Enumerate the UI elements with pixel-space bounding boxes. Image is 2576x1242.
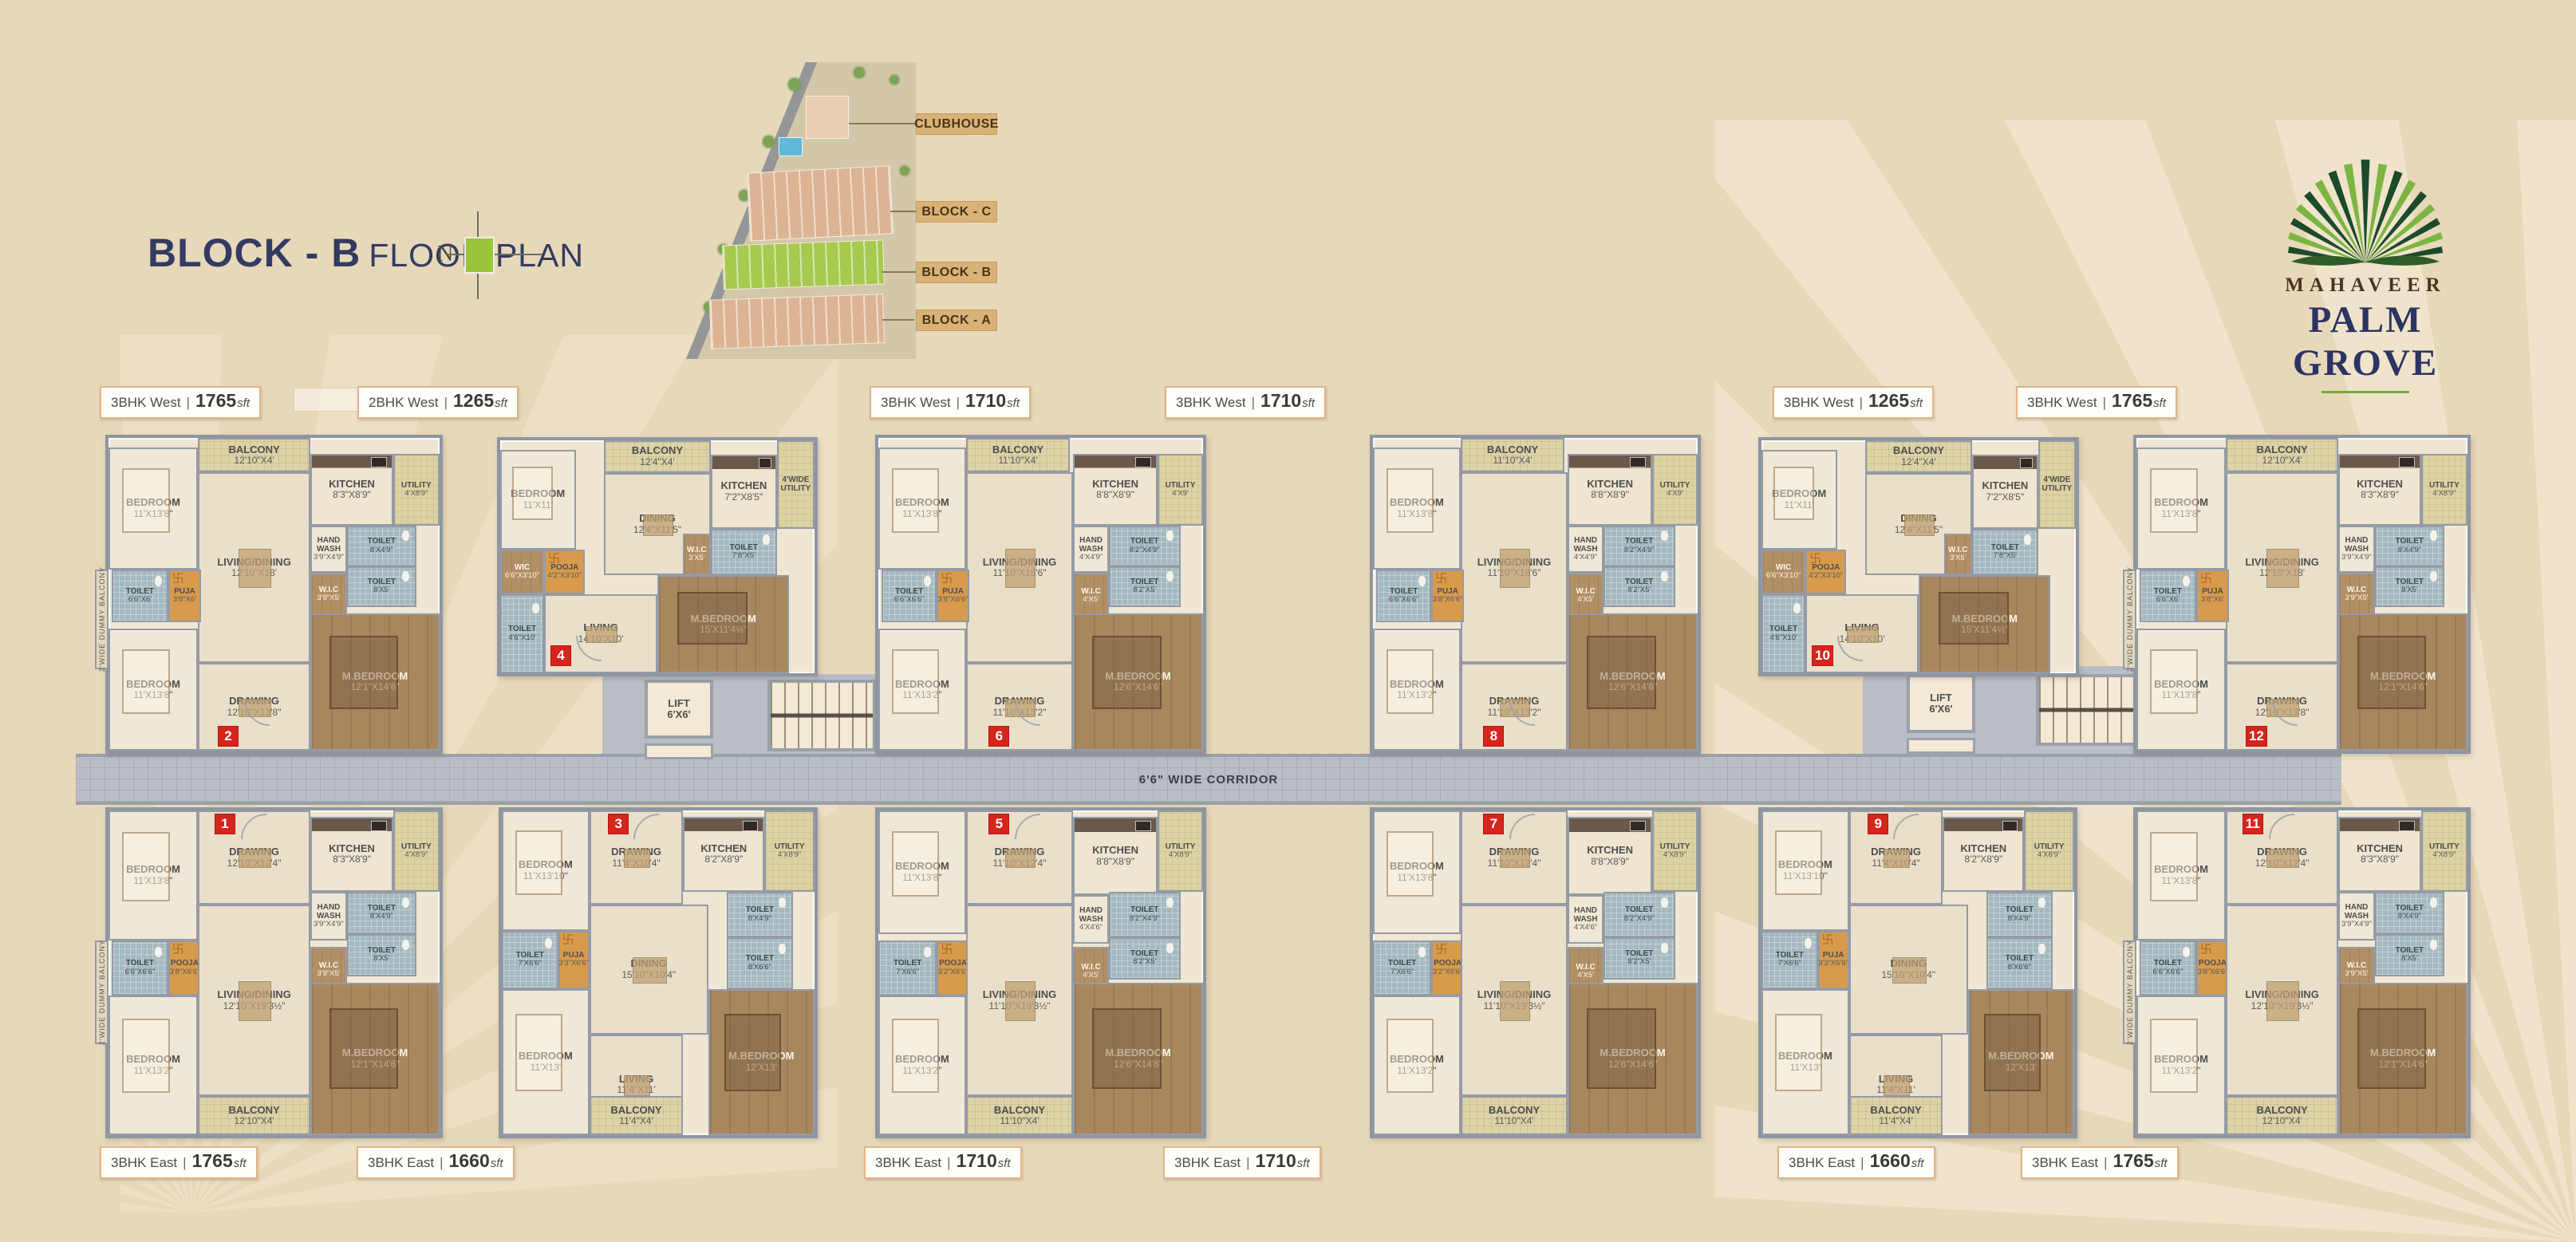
room-dimension: 8'X5' xyxy=(373,955,390,964)
room-dimension: 11'X13'2" xyxy=(902,1066,941,1076)
room-kitchen: KITCHEN8'8"X8'9" xyxy=(1073,817,1158,895)
brand-name: MAHAVEER xyxy=(2242,274,2489,297)
corridor: 6'6" WIDE CORRIDOR xyxy=(76,754,2341,805)
room-dimension: 4'X8'9" xyxy=(2432,851,2456,860)
room-name: LIVING/DINING xyxy=(217,557,290,569)
room-dimension: 4'X9' xyxy=(1172,490,1189,499)
room-m-bedroom: M.BEDROOM12'1"X14'6" xyxy=(310,983,440,1135)
room-name: LIVING/DINING xyxy=(2245,989,2318,1001)
room-bedroom: BEDROOM11'X13'2" xyxy=(2136,996,2226,1135)
room-toilet: TOILET8'X5' xyxy=(347,566,416,607)
room-dimension: 8'3"X8'9" xyxy=(333,854,371,865)
leader-line-block-a xyxy=(882,319,914,321)
room-dimension: 11'X13'10" xyxy=(1783,871,1828,881)
room-dimension: 4'X8'9" xyxy=(1663,851,1686,860)
logo-underline xyxy=(2322,391,2409,393)
room-dimension: 8'2"X5' xyxy=(1627,586,1651,595)
room-bedroom: BEDROOM11'X13'8" xyxy=(108,448,198,570)
lift-right: LIFT 6'X6' xyxy=(1907,674,1975,733)
room-dimension: 12'1"X14'6" xyxy=(2378,1059,2427,1070)
dummy-balcony-strip: 2'WIDE DUMMY BALCONY xyxy=(2123,940,2136,1044)
room-toilet: TOILET7'8"X5' xyxy=(711,529,777,575)
tree-icon xyxy=(854,67,865,78)
room-bedroom: BEDROOM11'X11' xyxy=(500,450,576,550)
room-name: M.BEDROOM xyxy=(728,1051,794,1063)
room-dimension: 8'X4'9" xyxy=(2008,915,2031,924)
room-name: DRAWING xyxy=(611,846,661,858)
room-dimension: 6'6"X3'10" xyxy=(1766,572,1801,581)
room-dimension: 15'10"X10'4" xyxy=(1881,970,1935,980)
room-dimension: 8'X6'6" xyxy=(748,964,771,972)
dummy-balcony-label: 2'WIDE DUMMY BALCONY xyxy=(2126,940,2134,1045)
room-dimension: 11'X13'2" xyxy=(133,1066,172,1076)
map-label-block-a: BLOCK - A xyxy=(916,310,997,331)
room-dimension: 6'6"X6'6" xyxy=(1389,596,1419,605)
unit-type: 3BHK East xyxy=(875,1155,941,1171)
north-indicator: N xyxy=(431,211,574,307)
leader-line-block-c xyxy=(890,211,916,212)
room-name: 4'WIDE UTILITY xyxy=(2040,475,2074,493)
room-living-dining: LIVING/DINING11'10"X18'6" xyxy=(1461,472,1568,663)
room-dimension: 11'X13'8" xyxy=(133,509,172,519)
room-dimension: 11'X13'8" xyxy=(2161,509,2200,519)
room-toilet: TOILET6'6"X6'6" xyxy=(882,570,937,623)
room-name: LIVING/DINING xyxy=(1477,557,1551,569)
room-utility: UTILITY4'X8'9" xyxy=(393,810,440,892)
room-dining: DINING15'10"X10'4" xyxy=(1849,905,1968,1035)
room-name: DINING xyxy=(639,513,676,525)
room-name: POOJA xyxy=(939,959,967,968)
unit-11: BEDROOM11'X13'8"DRAWING12'10"X12'4"KITCH… xyxy=(2133,807,2471,1138)
room-name: M.BEDROOM xyxy=(1105,1047,1170,1059)
room-bedroom: BEDROOM11'X13'2" xyxy=(878,996,966,1135)
staircase-left xyxy=(767,680,876,751)
room-dimension: 11'X11' xyxy=(523,500,554,511)
unit-area-label-8: 3BHK West|1710sft xyxy=(1165,386,1326,419)
room-name: M.BEDROOM xyxy=(342,1047,408,1059)
room-bedroom: BEDROOM11'X13'8" xyxy=(2136,629,2226,751)
area-unit: sft xyxy=(1911,1157,1924,1170)
room-dimension: 12'10"X18' xyxy=(2259,568,2305,578)
room-dimension: 7'8"X5' xyxy=(1994,552,2017,561)
room-dimension: 7'X6'6" xyxy=(519,960,542,968)
room-puja: PUJA3'8"X6' xyxy=(168,570,202,623)
room-dimension: 4'X5' xyxy=(1577,972,1594,980)
unit-10: BALCONY12'4"X4'BEDROOM11'X11'DINING12'4"… xyxy=(1758,437,2079,676)
room-m-bedroom: M.BEDROOM12'X13' xyxy=(708,989,815,1135)
room-name: BEDROOM xyxy=(519,1051,573,1063)
unit-area-label-11: 3BHK East|1765sft xyxy=(2021,1146,2179,1179)
room-dimension: 3'9"X5' xyxy=(317,970,340,979)
room-dimension: 4'X4'6" xyxy=(1574,924,1597,932)
unit-type: 3BHK West xyxy=(2027,395,2097,411)
dummy-balcony-strip: 2'WIDE DUMMY BALCONY xyxy=(95,570,108,669)
palm-icon xyxy=(2282,142,2449,270)
room-dimension: 12'10"X18' xyxy=(231,568,277,578)
room-toilet: TOILET8'2"X5' xyxy=(1604,566,1675,607)
room-puja: PUJA3'8"X6'6" xyxy=(1431,570,1464,623)
tree-icon xyxy=(900,166,909,175)
room-name: DRAWING xyxy=(1489,846,1540,858)
room-dimension: 12'1"X14'6" xyxy=(350,682,399,692)
room-dimension: 12'10"X19'3½" xyxy=(223,1001,286,1011)
room-toilet: TOILET8'X4'9" xyxy=(2375,526,2444,566)
room-dimension: 3'X5' xyxy=(688,554,705,563)
room-toilet: TOILET6'6"X6' xyxy=(2140,570,2196,623)
unit-type: 3BHK West xyxy=(111,395,181,411)
room-name: KITCHEN xyxy=(1092,479,1138,491)
room-kitchen: KITCHEN8'3"X8'9" xyxy=(2338,454,2421,526)
room-utility: UTILITY4'X8'9" xyxy=(2421,454,2468,526)
room-balcony: BALCONY12'4"X4' xyxy=(1865,440,1972,473)
room-name: KITCHEN xyxy=(720,480,767,492)
room-dimension: 12'6"X14'6" xyxy=(1114,1059,1162,1070)
room-name: BALCONY xyxy=(994,1105,1045,1117)
room-dimension: 12'6"X14'6" xyxy=(1608,1059,1657,1070)
room-name: LIVING xyxy=(619,1074,653,1086)
room-name: BEDROOM xyxy=(2154,864,2208,876)
room-dimension: 3'9"X5' xyxy=(2345,970,2368,979)
room-dimension: 3'X5' xyxy=(1950,554,1967,563)
room-toilet: TOILET4'6"X10' xyxy=(500,594,544,673)
room-bedroom: BEDROOM11'X13'8" xyxy=(108,629,198,751)
unit-area-label-7: 3BHK East|1710sft xyxy=(1163,1146,1321,1179)
room-name: BALCONY xyxy=(1870,1105,1921,1117)
room-name: HAND WASH xyxy=(1569,906,1602,924)
room-dimension: 7'2"X8'5" xyxy=(724,492,763,503)
unit-number-badge: 4 xyxy=(550,645,571,666)
room-dimension: 11'X13'8" xyxy=(2161,876,2200,886)
area-unit: sft xyxy=(1007,396,1020,410)
room-dimension: 4'X4'9" xyxy=(1574,554,1597,562)
room-dimension: 8'8"X8'9" xyxy=(1591,857,1629,867)
room-name: BALCONY xyxy=(1893,445,1944,457)
room-wic: WIC6'6"X3'10" xyxy=(1761,550,1805,593)
room-dimension: 8'2"X4'9" xyxy=(1130,915,1160,924)
swimming-pool xyxy=(779,137,803,156)
room-pooja: POOJA4'2"X3'10" xyxy=(1805,550,1846,593)
room-dimension: 12'X13' xyxy=(746,1063,777,1073)
room-name: DRAWING xyxy=(2257,846,2307,858)
room-toilet: TOILET6'6"X6' xyxy=(112,570,168,623)
room-w-i-c: W.I.C4'X5' xyxy=(1073,573,1109,620)
room-name: M.BEDROOM xyxy=(1600,1047,1665,1059)
room-bedroom: BEDROOM11'X13'2" xyxy=(1373,629,1461,751)
project-name: PALM GROVE xyxy=(2242,298,2489,384)
room-dimension: 11'X13'8" xyxy=(2161,690,2200,700)
leader-line-block-b xyxy=(882,271,916,273)
unit-area-value: 1710 xyxy=(957,1150,997,1172)
unit-area-value: 1765 xyxy=(2113,1150,2154,1172)
unit-area-label-12: 3BHK West|1765sft xyxy=(2016,386,2177,419)
room-name: BEDROOM xyxy=(2154,497,2208,509)
room-dimension: 6'6"X3'10" xyxy=(505,572,539,581)
room-w-i-c: W.I.C3'X5' xyxy=(1944,534,1972,576)
room-name: DINING xyxy=(1900,513,1937,525)
room-pooja: POOJA3'8"X6'6" xyxy=(2196,940,2230,996)
room-w-i-c: W.I.C4'X5' xyxy=(1568,573,1604,620)
room-dimension: 4'X8'9" xyxy=(404,490,428,499)
room-toilet: TOILET8'X4'9" xyxy=(2375,892,2444,934)
room-name: BEDROOM xyxy=(126,864,180,876)
room-dimension: 3'8"X6'6" xyxy=(1433,596,1463,605)
lift-label: LIFT xyxy=(1930,692,1951,704)
room-dimension: 12'10"X19'3½" xyxy=(2251,1001,2314,1011)
room-dimension: 8'X4'9" xyxy=(2398,546,2421,555)
room-name: LIVING/DINING xyxy=(983,557,1056,569)
room-living-dining: LIVING/DINING12'10"X19'3½" xyxy=(2226,905,2338,1096)
room-dimension: 4'X9' xyxy=(1667,490,1683,499)
room-dimension: 3'9"X4'9" xyxy=(2341,554,2372,562)
room-toilet: TOILET8'2"X5' xyxy=(1109,566,1181,607)
room-dimension: 8'3"X8'9" xyxy=(2361,490,2399,500)
room-name: BEDROOM xyxy=(2154,1054,2208,1066)
room-name: TOILET xyxy=(508,625,536,633)
room-name: LIVING xyxy=(1844,622,1879,634)
lift-shaft-right xyxy=(1907,738,1975,754)
label-separator: | xyxy=(947,1155,950,1171)
room-dimension: 8'8"X8'9" xyxy=(1096,857,1134,867)
room-dimension: 8'2"X4'9" xyxy=(1624,915,1655,924)
room-dimension: 8'X4'9" xyxy=(2398,913,2421,921)
room-hand-wash: HAND WASH3'9"X4'9" xyxy=(2338,526,2375,573)
area-unit: sft xyxy=(234,1157,247,1170)
room-balcony: BALCONY12'10"X4' xyxy=(2226,438,2338,472)
room-dimension: 8'X4'9" xyxy=(370,546,393,555)
map-label-block-b: BLOCK - B xyxy=(916,262,997,283)
room-dimension: 4'6"X10' xyxy=(508,634,535,643)
room-balcony: BALCONY11'4"X4' xyxy=(1849,1096,1943,1135)
room-name: BEDROOM xyxy=(511,488,565,500)
room-dimension: 11'X13'8" xyxy=(133,876,172,886)
room-dimension: 8'X4'9" xyxy=(370,913,393,921)
room-toilet: TOILET8'X5' xyxy=(2375,934,2444,976)
label-separator: | xyxy=(1246,1155,1249,1171)
unit-area-value: 1710 xyxy=(1260,390,1301,412)
room-dimension: 8'2"X4'9" xyxy=(1130,546,1160,555)
room-dimension: 12'4"X11'5" xyxy=(1895,525,1943,535)
unit-3: BEDROOM11'X13'10"DRAWING11'4"X10'4"KITCH… xyxy=(499,807,818,1138)
room-dimension: 12'10"X4' xyxy=(234,1116,274,1126)
room-name: POOJA xyxy=(1434,959,1462,968)
room-kitchen: KITCHEN7'2"X8'5" xyxy=(711,455,777,529)
room-name: LIVING xyxy=(583,622,617,634)
room-name: TOILET xyxy=(1130,905,1158,914)
room-dimension: 4'X8'9" xyxy=(404,851,428,860)
area-unit: sft xyxy=(2155,1157,2168,1170)
room-name: HAND WASH xyxy=(2340,536,2373,554)
room-dimension: 3'9"X4'9" xyxy=(314,921,344,929)
floor-plan-canvas: BLOCK - BFLOOR PLAN N CLUBHOUSE BLOCK - … xyxy=(0,0,2576,1242)
unit-type: 3BHK East xyxy=(368,1155,434,1171)
block-b-building xyxy=(722,239,885,290)
room-dimension: 8'2"X5' xyxy=(1133,586,1156,595)
room-name: BEDROOM xyxy=(895,861,949,873)
staircase-right xyxy=(2036,674,2144,746)
room-name: LIVING/DINING xyxy=(983,989,1056,1001)
room-name: KITCHEN xyxy=(1960,843,2006,855)
room-name: BALCONY xyxy=(2256,444,2307,456)
room-utility: UTILITY4'X8'9" xyxy=(393,454,440,526)
leader-line-clubhouse xyxy=(849,123,917,124)
room-dimension: 8'X5' xyxy=(2401,586,2418,595)
map-label-block-c: BLOCK - C xyxy=(916,201,997,223)
room-balcony: BALCONY12'4"X4' xyxy=(604,440,711,473)
room-dimension: 8'2"X8'9" xyxy=(1964,854,2002,865)
room-dimension: 3'9"X5' xyxy=(2345,594,2368,603)
room-dimension: 6'6"X6'6" xyxy=(894,596,925,605)
room-name: DRAWING xyxy=(229,846,279,858)
room-dimension: 3'9"X4'9" xyxy=(314,554,344,562)
room-pooja: POOJA3'8"X6'6" xyxy=(168,940,202,996)
unit-1: BEDROOM11'X13'8"DRAWING12'10"X12'4"KITCH… xyxy=(105,807,443,1138)
room-name: KITCHEN xyxy=(1587,845,1633,857)
room-m-bedroom: M.BEDROOM15'X11'4½" xyxy=(1919,575,2050,673)
room-balcony: BALCONY11'4"X4' xyxy=(590,1096,684,1135)
room-name: TOILET xyxy=(746,954,774,963)
label-separator: | xyxy=(1860,1155,1864,1171)
unit-type: 2BHK West xyxy=(369,395,439,411)
label-separator: | xyxy=(183,1155,186,1171)
block-c-building xyxy=(747,165,894,241)
room-hand-wash: HAND WASH3'9"X4'9" xyxy=(310,526,347,573)
unit-number-badge: 9 xyxy=(1868,814,1888,834)
room-toilet: TOILET8'2"X4'9" xyxy=(1109,526,1181,566)
unit-area-label-9: 3BHK East|1660sft xyxy=(1777,1146,1935,1179)
room-bedroom: BEDROOM11'X13' xyxy=(502,989,590,1135)
room-name: KITCHEN xyxy=(2357,843,2403,855)
unit-8: BALCONY11'10"X4'BEDROOM11'X13'8"LIVING/D… xyxy=(1370,435,1701,754)
room-kitchen: KITCHEN8'3"X8'9" xyxy=(310,817,393,892)
unit-number-badge: 10 xyxy=(1812,645,1833,666)
room-balcony: BALCONY11'10"X4' xyxy=(1461,1096,1568,1135)
unit-area-label-3: 3BHK East|1660sft xyxy=(357,1146,515,1179)
room-dimension: 8'3"X8'9" xyxy=(333,490,371,500)
room-toilet: TOILET7'X6'6" xyxy=(878,940,937,996)
room-dimension: 12'10"X12'4" xyxy=(2255,858,2310,869)
room-name: BALCONY xyxy=(2256,1105,2307,1117)
room-dimension: 11'10"X4' xyxy=(998,455,1037,466)
room-dimension: 11'X13'2" xyxy=(1397,1066,1436,1076)
room-drawing: DRAWING11'4"X10'4" xyxy=(590,810,684,905)
room-utility: UTILITY4'X8'9" xyxy=(2421,810,2468,892)
room-name: TOILET xyxy=(2154,959,2182,968)
room-name: M.BEDROOM xyxy=(1600,671,1665,683)
room-name: LIVING/DINING xyxy=(2245,557,2318,569)
room-pooja: POOJA3'2"X6'6" xyxy=(937,940,969,996)
room-name: BEDROOM xyxy=(519,859,573,871)
room-kitchen: KITCHEN8'8"X8'9" xyxy=(1073,454,1158,526)
room-name: BALCONY xyxy=(632,445,683,457)
room-hand-wash: HAND WASH4'X4'9" xyxy=(1073,526,1109,573)
unit-area-value: 1265 xyxy=(1868,390,1909,412)
label-separator: | xyxy=(187,395,190,411)
label-separator: | xyxy=(2104,1155,2107,1171)
room-dimension: 12'1"X14'6" xyxy=(350,1059,399,1070)
room-name: M.BEDROOM xyxy=(2370,671,2436,683)
room-bedroom: BEDROOM11'X13'2" xyxy=(878,629,966,751)
unit-number-badge: 11 xyxy=(2243,814,2263,834)
room-bedroom: BEDROOM11'X13'2" xyxy=(108,996,198,1135)
room-dimension: 8'2"X5' xyxy=(1627,958,1651,967)
room-toilet: TOILET7'X6'6" xyxy=(502,931,558,989)
room-toilet: TOILET8'X5' xyxy=(2375,566,2444,607)
room-dimension: 4'X8'9" xyxy=(778,851,801,860)
unit-number-badge: 2 xyxy=(218,726,239,747)
dummy-balcony-label: 2'WIDE DUMMY BALCONY xyxy=(2126,566,2134,672)
north-horizontal-line xyxy=(447,254,542,255)
map-label-clubhouse: CLUBHOUSE xyxy=(916,113,997,135)
room-toilet: TOILET8'X6'6" xyxy=(1986,937,2052,989)
area-unit: sft xyxy=(1302,396,1315,410)
room-dimension: 8'3"X8'9" xyxy=(2361,854,2399,865)
room-dimension: 11'X13' xyxy=(531,1063,561,1073)
room-w-i-c: W.I.C3'9"X5' xyxy=(2338,573,2375,617)
unit-area-label-2: 3BHK West|1765sft xyxy=(100,386,261,419)
room-puja: PUJA3'3"X6'6" xyxy=(1818,931,1849,989)
room-name: M.BEDROOM xyxy=(2370,1047,2436,1059)
unit-2: BALCONY12'10"X4'BEDROOM11'X13'8"LIVING/D… xyxy=(105,435,443,754)
unit-area-label-1: 3BHK East|1765sft xyxy=(100,1146,258,1179)
room-name: BALCONY xyxy=(228,1105,279,1117)
room-dimension: 8'2"X8'9" xyxy=(704,854,743,865)
tree-icon xyxy=(788,78,801,91)
room-dimension: 8'X6'6" xyxy=(2008,964,2031,972)
room-dimension: 4'2"X3'10" xyxy=(1809,572,1843,581)
label-separator: | xyxy=(440,1155,443,1171)
room-dimension: 11'X13'2" xyxy=(2161,1066,2200,1076)
room-name: HAND WASH xyxy=(312,536,345,554)
room-dimension: 11'10"X18'6" xyxy=(993,568,1047,578)
room-toilet: TOILET6'6"X6'6" xyxy=(112,940,168,996)
label-separator: | xyxy=(2103,395,2106,411)
lift-left: LIFT 6'X6' xyxy=(645,680,713,739)
unit-area-value: 1765 xyxy=(195,390,236,412)
room-name: KITCHEN xyxy=(329,479,375,491)
room-bedroom: BEDROOM11'X13'10" xyxy=(502,810,590,931)
room-name: DINING xyxy=(1890,958,1927,970)
room-m-bedroom: M.BEDROOM12'1"X14'6" xyxy=(2338,983,2468,1135)
room-dimension: 3'8"X6'6" xyxy=(938,596,968,605)
room-kitchen: KITCHEN8'2"X8'9" xyxy=(683,817,764,892)
room-dimension: 3'8"X6' xyxy=(173,596,196,605)
room-name: POOJA xyxy=(171,959,199,968)
room-name: M.BEDROOM xyxy=(691,613,756,625)
unit-type: 3BHK West xyxy=(881,395,951,411)
lift-size: 6'X6' xyxy=(1929,704,1952,715)
unit-type: 3BHK West xyxy=(1784,395,1854,411)
corridor-label: 6'6" WIDE CORRIDOR xyxy=(1139,773,1279,787)
room-dimension: 3'2"X6'6" xyxy=(938,968,968,977)
room-dimension: 11'4"X11' xyxy=(1876,1085,1915,1095)
room-m-bedroom: M.BEDROOM12'1"X14'6" xyxy=(310,613,440,751)
room-name: BEDROOM xyxy=(1778,859,1832,871)
area-unit: sft xyxy=(491,1157,503,1170)
room-name: BEDROOM xyxy=(1772,488,1826,500)
room-m-bedroom: M.BEDROOM12'6"X14'6" xyxy=(1568,983,1698,1135)
room-name: BEDROOM xyxy=(895,1054,949,1066)
unit-number-badge: 3 xyxy=(608,814,629,834)
room-dimension: 11'10"X12'4" xyxy=(1488,858,1541,869)
room-m-bedroom: M.BEDROOM12'1"X14'6" xyxy=(2338,613,2468,751)
room-bedroom: BEDROOM11'X13'8" xyxy=(2136,448,2226,570)
room-name: M.BEDROOM xyxy=(1988,1051,2053,1063)
room-dimension: 12'6"X14'6" xyxy=(1114,682,1162,692)
room-dimension: 12'10"X4' xyxy=(2262,455,2302,466)
room-name: M.BEDROOM xyxy=(1105,671,1170,683)
area-unit: sft xyxy=(1910,396,1923,410)
area-unit: sft xyxy=(998,1157,1011,1170)
